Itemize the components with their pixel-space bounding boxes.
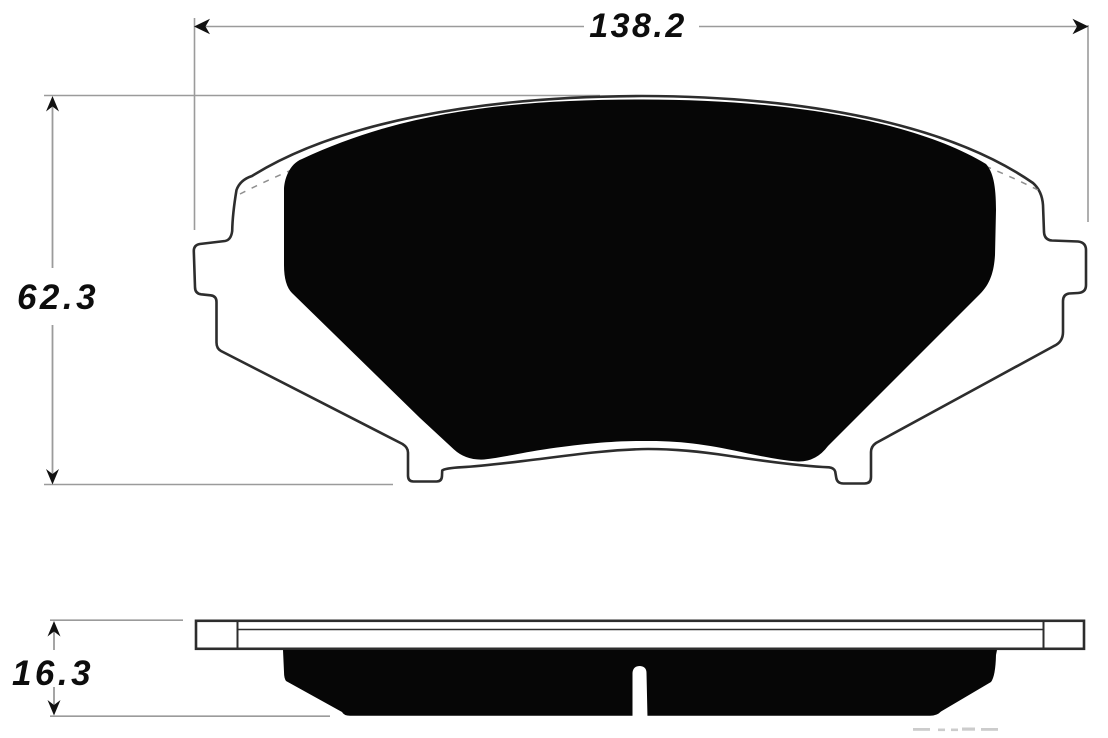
svg-text:62.3: 62.3 xyxy=(17,278,99,317)
svg-text:16.3: 16.3 xyxy=(12,654,94,693)
svg-text:138.2: 138.2 xyxy=(589,7,687,45)
